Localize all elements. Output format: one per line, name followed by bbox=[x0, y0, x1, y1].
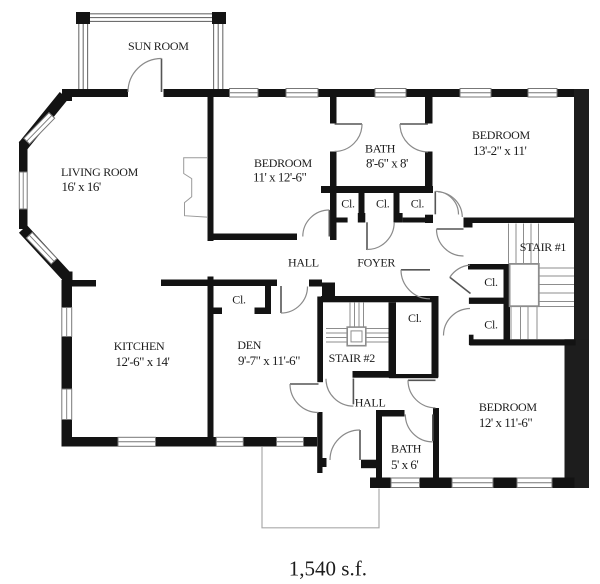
svg-text:5' x 6': 5' x 6' bbox=[391, 457, 418, 472]
svg-text:HALL: HALL bbox=[288, 255, 319, 269]
svg-text:8'-6" x 8': 8'-6" x 8' bbox=[366, 155, 408, 170]
svg-text:Cl.: Cl. bbox=[411, 197, 425, 211]
svg-text:Cl.: Cl. bbox=[341, 197, 355, 211]
svg-text:LIVING ROOM: LIVING ROOM bbox=[61, 165, 139, 179]
svg-text:12'-6" x 14': 12'-6" x 14' bbox=[116, 354, 170, 369]
svg-text:HALL: HALL bbox=[355, 396, 386, 410]
svg-text:BATH: BATH bbox=[391, 442, 422, 456]
svg-text:BEDROOM: BEDROOM bbox=[479, 400, 538, 414]
svg-text:STAIR #1: STAIR #1 bbox=[520, 240, 567, 254]
svg-text:KITCHEN: KITCHEN bbox=[114, 339, 165, 353]
svg-text:16' x 16': 16' x 16' bbox=[62, 179, 101, 194]
svg-text:Cl.: Cl. bbox=[484, 275, 498, 289]
svg-text:11' x 12'-6": 11' x 12'-6" bbox=[253, 169, 307, 184]
svg-text:Cl.: Cl. bbox=[376, 197, 390, 211]
svg-text:DEN: DEN bbox=[237, 338, 261, 352]
svg-text:BEDROOM: BEDROOM bbox=[472, 128, 531, 142]
svg-text:SUN ROOM: SUN ROOM bbox=[128, 39, 189, 53]
svg-text:1,540 s.f.: 1,540 s.f. bbox=[289, 557, 367, 581]
svg-text:13'-2" x 11': 13'-2" x 11' bbox=[473, 143, 526, 158]
svg-text:9'-7" x 11'-6": 9'-7" x 11'-6" bbox=[238, 353, 300, 368]
svg-text:BEDROOM: BEDROOM bbox=[254, 156, 313, 170]
svg-text:FOYER: FOYER bbox=[357, 255, 395, 269]
svg-text:STAIR #2: STAIR #2 bbox=[329, 351, 376, 365]
svg-text:Cl.: Cl. bbox=[408, 311, 422, 325]
svg-text:12' x 11'-6": 12' x 11'-6" bbox=[479, 415, 533, 430]
svg-text:BATH: BATH bbox=[365, 141, 396, 155]
svg-text:Cl.: Cl. bbox=[232, 293, 246, 307]
svg-text:Cl.: Cl. bbox=[484, 318, 498, 332]
